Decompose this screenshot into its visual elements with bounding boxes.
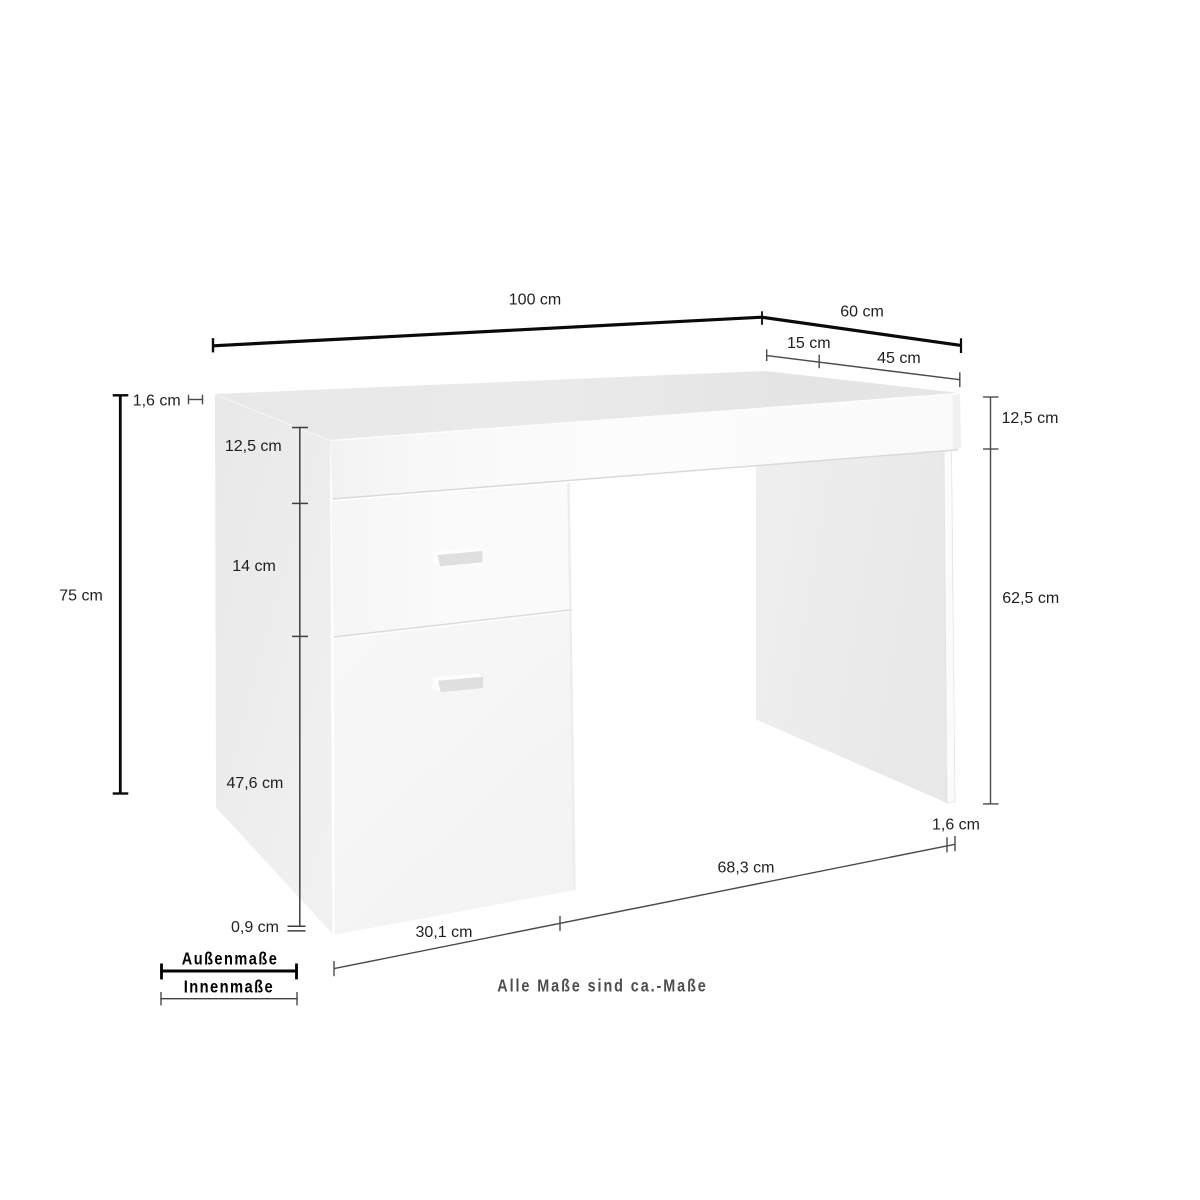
svg-text:0,9 cm: 0,9 cm: [231, 919, 279, 936]
svg-text:75 cm: 75 cm: [59, 587, 103, 604]
svg-text:100 cm: 100 cm: [509, 292, 561, 309]
svg-text:62,5 cm: 62,5 cm: [1002, 590, 1059, 607]
svg-text:68,3 cm: 68,3 cm: [718, 859, 775, 876]
svg-text:15 cm: 15 cm: [787, 335, 831, 352]
svg-text:Außenmaße: Außenmaße: [182, 949, 279, 969]
svg-text:47,6 cm: 47,6 cm: [226, 775, 283, 792]
svg-text:12,5 cm: 12,5 cm: [225, 438, 282, 455]
svg-text:1,6 cm: 1,6 cm: [932, 816, 980, 833]
svg-text:12,5 cm: 12,5 cm: [1002, 410, 1059, 427]
svg-text:Innenmaße: Innenmaße: [184, 977, 274, 996]
svg-text:14 cm: 14 cm: [232, 558, 276, 575]
svg-text:Alle Maße sind ca.-Maße: Alle Maße sind ca.-Maße: [497, 976, 707, 996]
svg-text:60 cm: 60 cm: [840, 304, 884, 321]
svg-text:1,6 cm: 1,6 cm: [133, 392, 181, 409]
svg-text:30,1 cm: 30,1 cm: [416, 924, 473, 941]
svg-text:45 cm: 45 cm: [877, 350, 921, 367]
